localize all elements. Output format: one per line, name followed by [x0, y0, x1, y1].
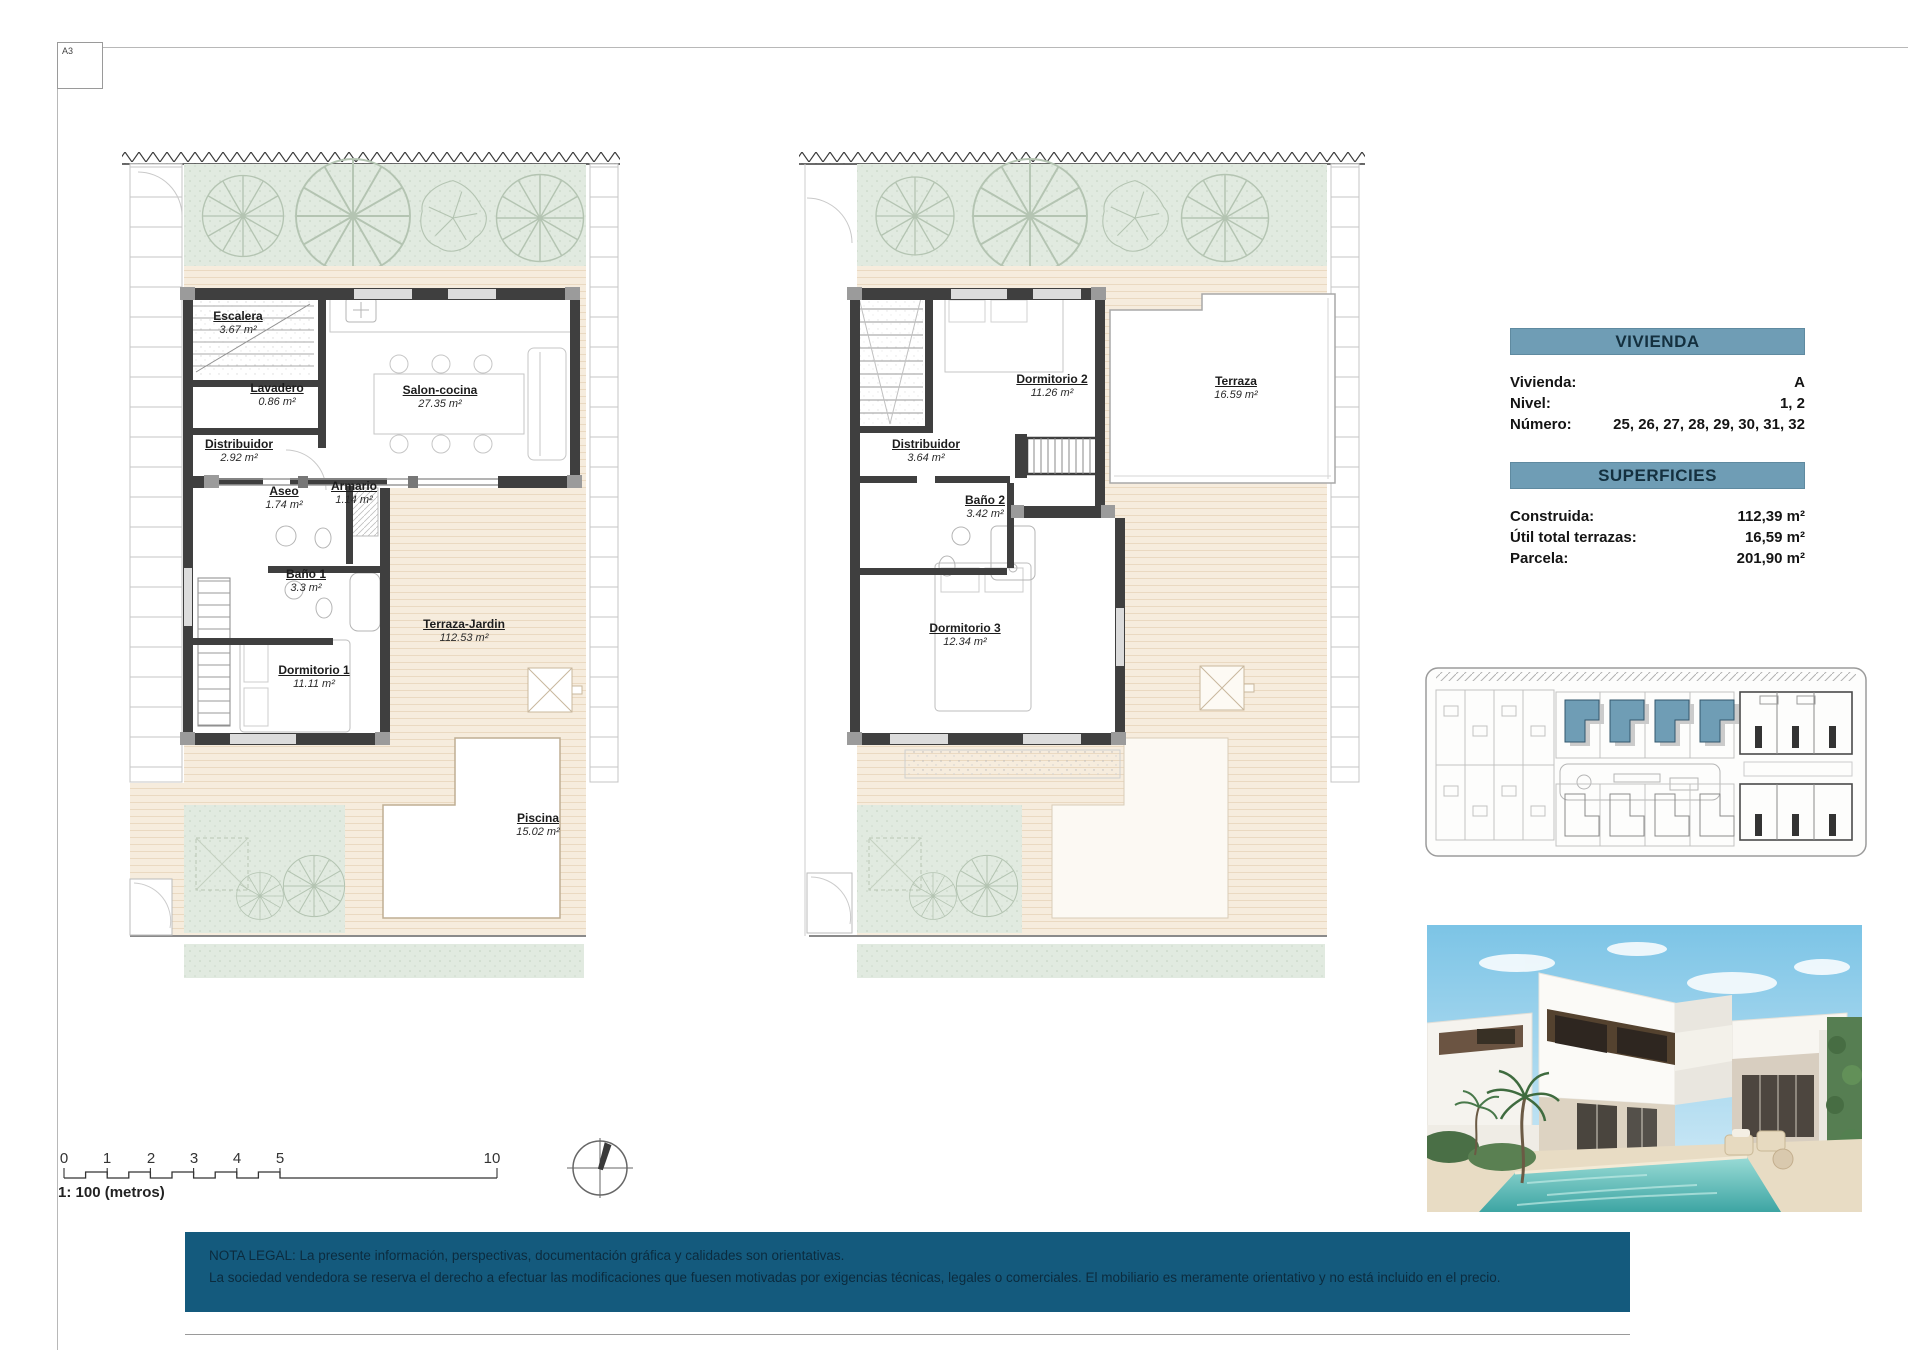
row-value: 25, 26, 27, 28, 29, 30, 31, 32: [1613, 414, 1805, 435]
room-label-distribuidor-2: Distribuidor 3.64 m²: [892, 438, 960, 465]
plan2-fence: [799, 152, 1365, 164]
room-name: Aseo: [265, 485, 302, 498]
room-name: Baño 1: [286, 568, 326, 581]
scale-caption: 1: 100 (metros): [58, 1184, 165, 1201]
legal-note: NOTA LEGAL: La presente información, per…: [185, 1232, 1630, 1312]
room-label-terraza: Terraza 16.59 m²: [1214, 375, 1257, 402]
room-label-dormitorio-2: Dormitorio 2 11.26 m²: [1016, 373, 1087, 400]
plan2-garden-patch: [857, 805, 1022, 933]
room-area: 2.92 m²: [205, 452, 273, 465]
villa-render: [1427, 925, 1862, 1212]
room-name: Salon-cocina: [403, 384, 478, 397]
floor-plan-first: [795, 138, 1373, 984]
plan2-porch: [905, 750, 1120, 778]
room-area: 1.14 m²: [331, 494, 377, 507]
legal-line-2: La sociedad vendedora se reserva el dere…: [209, 1267, 1606, 1289]
room-name: Dormitorio 3: [929, 622, 1000, 635]
scale-tick: 1: [103, 1150, 111, 1167]
plan2-plot-line: [809, 935, 1327, 937]
bottom-rule: [185, 1334, 1630, 1335]
scale-tick: 2: [147, 1150, 155, 1167]
row-label: Construida:: [1510, 506, 1594, 527]
plan2-garden: [807, 159, 1327, 273]
room-area: 3.3 m²: [286, 582, 326, 595]
plan1-plot-line: [130, 935, 586, 937]
row-value: 112,39 m²: [1737, 506, 1805, 527]
row-value: 201,90 m²: [1737, 548, 1805, 569]
room-label-armario: Armario 1.14 m²: [331, 480, 377, 507]
room-area: 3.42 m²: [965, 508, 1005, 521]
room-area: 3.67 m²: [213, 324, 262, 337]
room-name: Terraza-Jardin: [423, 618, 505, 631]
room-area: 0.86 m²: [250, 396, 303, 409]
legal-line-1: NOTA LEGAL: La presente información, per…: [209, 1245, 1606, 1267]
room-area: 112.53 m²: [423, 632, 505, 645]
room-label-aseo: Aseo 1.74 m²: [265, 485, 302, 512]
plan2-building: [847, 287, 1126, 778]
plan1-gate: [130, 879, 172, 935]
plan2-wardrobe: [1015, 434, 1099, 478]
panel-row: Útil total terrazas: 16,59 m²: [1510, 527, 1805, 548]
scale-tick: 4: [233, 1150, 241, 1167]
room-label-dormitorio-3: Dormitorio 3 12.34 m²: [929, 622, 1000, 649]
room-label-bano-1: Baño 1 3.3 m²: [286, 568, 326, 595]
plan1-outer-green: [184, 944, 584, 978]
room-name: Terraza: [1214, 375, 1257, 388]
sheet-size-text: A3: [62, 46, 73, 56]
room-label-distribuidor-1: Distribuidor 2.92 m²: [205, 438, 273, 465]
scale-tick: 0: [60, 1150, 68, 1167]
room-area: 3.64 m²: [892, 452, 960, 465]
room-label-terraza-jardin: Terraza-Jardin 112.53 m²: [423, 618, 505, 645]
room-area: 15.02 m²: [516, 826, 559, 839]
north-arrow-icon: [567, 1138, 633, 1198]
row-value: A: [1794, 372, 1805, 393]
vivienda-panel: VIVIENDA Vivienda: A Nivel: 1, 2 Número:…: [1510, 328, 1805, 435]
plan-sheet: A3: [0, 0, 1920, 1357]
row-label: Nivel:: [1510, 393, 1551, 414]
site-plan: [1424, 666, 1868, 858]
room-area: 12.34 m²: [929, 636, 1000, 649]
panel-row: Número: 25, 26, 27, 28, 29, 30, 31, 32: [1510, 414, 1805, 435]
superficies-panel-title: SUPERFICIES: [1598, 466, 1717, 486]
room-name: Dormitorio 2: [1016, 373, 1087, 386]
panel-row: Vivienda: A: [1510, 372, 1805, 393]
superficies-panel-rows: Construida: 112,39 m² Útil total terraza…: [1510, 489, 1805, 569]
panel-row: Parcela: 201,90 m²: [1510, 548, 1805, 569]
room-area: 16.59 m²: [1214, 389, 1257, 402]
room-name: Distribuidor: [205, 438, 273, 451]
room-name: Armario: [331, 480, 377, 493]
superficies-panel: SUPERFICIES Construida: 112,39 m² Útil t…: [1510, 462, 1805, 569]
vivienda-panel-rows: Vivienda: A Nivel: 1, 2 Número: 25, 26, …: [1510, 355, 1805, 435]
room-label-lavadero: Lavadero 0.86 m²: [250, 382, 303, 409]
room-name: Lavadero: [250, 382, 303, 395]
panel-row: Nivel: 1, 2: [1510, 393, 1805, 414]
room-area: 27.35 m²: [403, 398, 478, 411]
room-area: 1.74 m²: [265, 499, 302, 512]
plan1-garden: [138, 159, 586, 273]
room-label-bano-2: Baño 2 3.42 m²: [965, 494, 1005, 521]
room-label-piscina: Piscina 15.02 m²: [516, 812, 559, 839]
room-label-dormitorio-1: Dormitorio 1 11.11 m²: [278, 664, 349, 691]
scale-tick: 5: [276, 1150, 284, 1167]
plan2-gate: [807, 873, 852, 933]
room-name: Distribuidor: [892, 438, 960, 451]
row-value: 1, 2: [1780, 393, 1805, 414]
vivienda-panel-title: VIVIENDA: [1615, 332, 1699, 352]
scale-tick: 3: [190, 1150, 198, 1167]
room-name: Escalera: [213, 310, 262, 323]
superficies-panel-header: SUPERFICIES: [1510, 462, 1805, 489]
room-area: 11.26 m²: [1016, 387, 1087, 400]
room-name: Dormitorio 1: [278, 664, 349, 677]
panel-row: Construida: 112,39 m²: [1510, 506, 1805, 527]
page-border-top: [57, 47, 1908, 48]
plan2-outer-green: [857, 944, 1325, 978]
room-area: 11.11 m²: [278, 678, 349, 691]
row-label: Número:: [1510, 414, 1572, 435]
room-label-salon-cocina: Salon-cocina 27.35 m²: [403, 384, 478, 411]
row-value: 16,59 m²: [1745, 527, 1805, 548]
row-label: Útil total terrazas:: [1510, 527, 1637, 548]
row-label: Parcela:: [1510, 548, 1568, 569]
sheet-size-label: A3: [57, 42, 103, 89]
room-label-escalera: Escalera 3.67 m²: [213, 310, 262, 337]
scale-tick: 10: [484, 1150, 501, 1167]
floor-plan-ground: [118, 138, 630, 984]
room-name: Piscina: [516, 812, 559, 825]
site-hatch-border: [1436, 672, 1856, 681]
vivienda-panel-header: VIVIENDA: [1510, 328, 1805, 355]
plan1-garden-patch: [184, 805, 345, 933]
row-label: Vivienda:: [1510, 372, 1576, 393]
room-name: Baño 2: [965, 494, 1005, 507]
